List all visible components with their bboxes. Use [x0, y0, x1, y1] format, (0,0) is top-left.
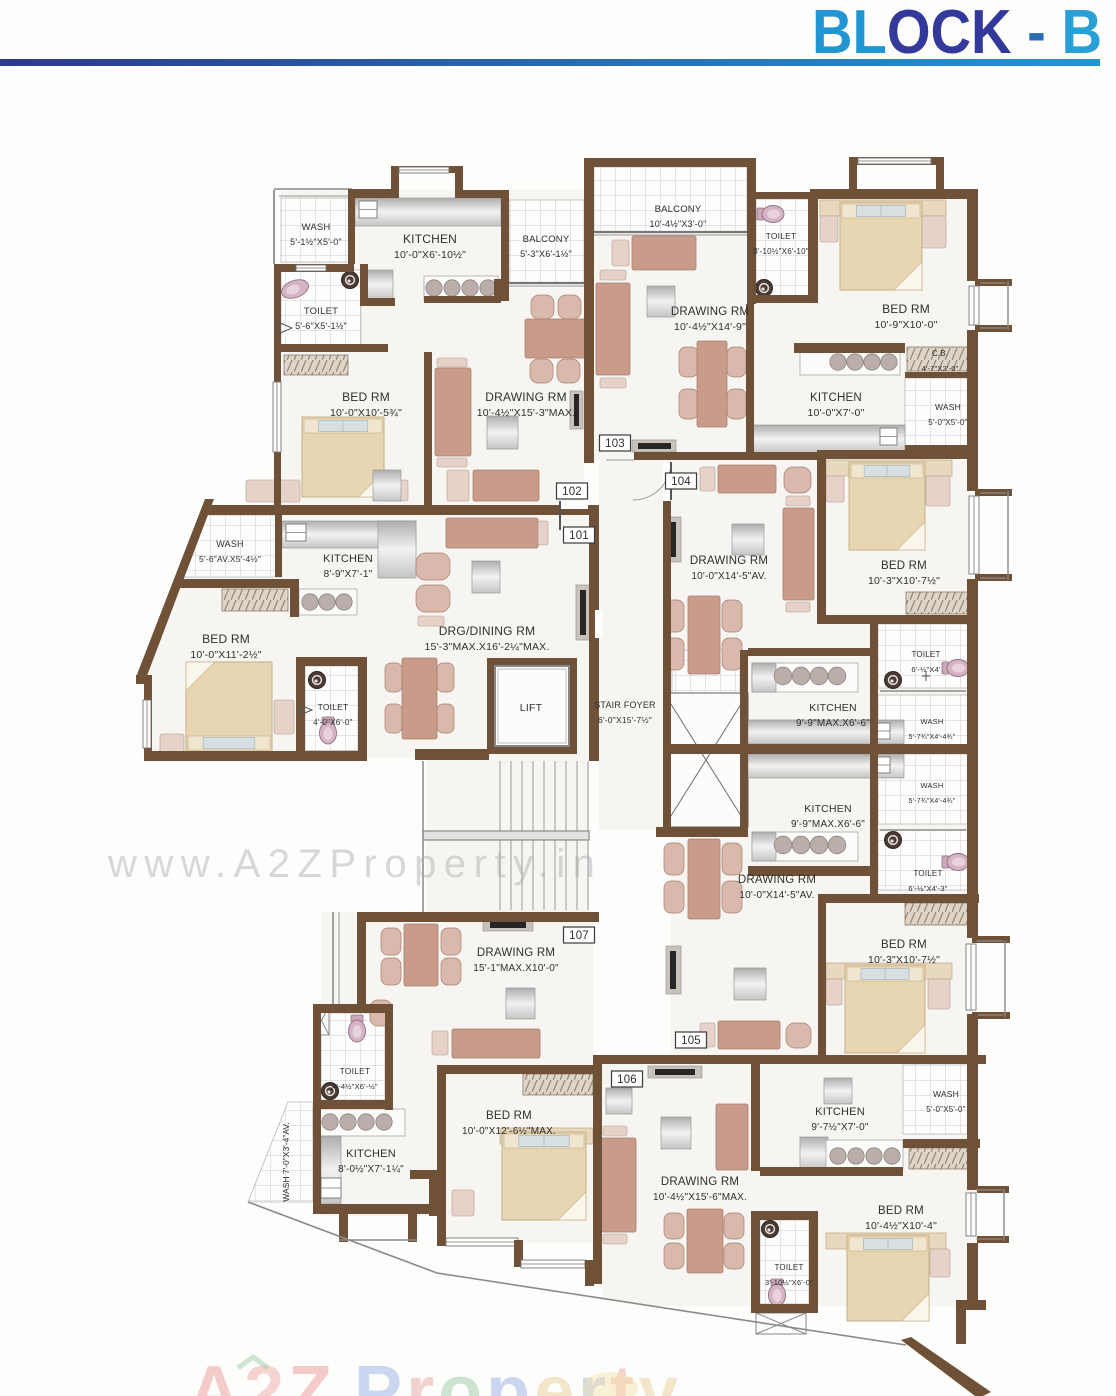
svg-text:10'-4½"X3'-0": 10'-4½"X3'-0": [650, 219, 707, 229]
svg-text:DRAWING RM: DRAWING RM: [671, 306, 749, 318]
svg-text:DRAWING RM: DRAWING RM: [661, 1176, 739, 1188]
svg-text:BED RM: BED RM: [882, 302, 930, 316]
svg-text:WASH 7'-0"X3'-4"AV.: WASH 7'-0"X3'-4"AV.: [281, 1122, 291, 1201]
svg-text:WASH: WASH: [920, 717, 943, 726]
svg-text:10'-9"X10'-0": 10'-9"X10'-0": [874, 319, 937, 331]
svg-text:TOILET: TOILET: [911, 650, 940, 659]
svg-text:3'-10½"X6'-10": 3'-10½"X6'-10": [753, 247, 809, 256]
svg-text:DRAWING RM: DRAWING RM: [477, 947, 555, 959]
svg-text:KITCHEN: KITCHEN: [809, 702, 857, 714]
svg-text:5'-7¾"X4'-4¾": 5'-7¾"X4'-4¾": [909, 798, 956, 805]
svg-text:10'-0"X12'-6½"MAX.: 10'-0"X12'-6½"MAX.: [462, 1126, 556, 1137]
svg-text:10'-0"X10'-5¾": 10'-0"X10'-5¾": [330, 407, 402, 419]
svg-text:10'-0"X6'-10½": 10'-0"X6'-10½": [394, 249, 466, 261]
svg-text:KITCHEN: KITCHEN: [403, 232, 457, 246]
svg-text:BED RM: BED RM: [881, 939, 927, 951]
svg-text:15'-1"MAX.X10'-0": 15'-1"MAX.X10'-0": [473, 963, 559, 974]
svg-text:WASH: WASH: [920, 781, 943, 790]
svg-text:15'-3"MAX.X16'-2¼"MAX.: 15'-3"MAX.X16'-2¼"MAX.: [425, 641, 550, 653]
svg-text:BALCONY: BALCONY: [655, 204, 702, 215]
svg-text:KITCHEN: KITCHEN: [815, 1106, 865, 1118]
svg-text:8'-9"X7'-1": 8'-9"X7'-1": [324, 569, 373, 580]
svg-text:8'-0½"X7'-1¼": 8'-0½"X7'-1¼": [338, 1163, 404, 1175]
svg-text:www.A2ZProperty.in: www.A2ZProperty.in: [107, 842, 602, 886]
svg-text:5'-6"AV.X5'-4½": 5'-6"AV.X5'-4½": [199, 554, 261, 564]
svg-text:KITCHEN: KITCHEN: [346, 1148, 396, 1160]
svg-text:TOILET: TOILET: [913, 869, 942, 878]
svg-text:10'-3"X10'-7½": 10'-3"X10'-7½": [868, 954, 940, 966]
svg-text:10'-4½"X15'-3"MAX.: 10'-4½"X15'-3"MAX.: [477, 407, 576, 419]
svg-text:9'-9"MAX.X6'-6": 9'-9"MAX.X6'-6": [791, 819, 865, 830]
svg-text:10'-4½"X15'-6"MAX.: 10'-4½"X15'-6"MAX.: [653, 1192, 747, 1203]
svg-text:4'-7"X2'-0": 4'-7"X2'-0": [921, 364, 958, 373]
svg-text:9'-7½"X7'-0": 9'-7½"X7'-0": [811, 1122, 868, 1133]
svg-text:3'-10½"X6'-0": 3'-10½"X6'-0": [765, 1278, 813, 1287]
svg-text:101: 101: [569, 530, 589, 542]
svg-text:10'-0"X14'-5"AV.: 10'-0"X14'-5"AV.: [691, 571, 766, 582]
svg-text:BED RM: BED RM: [878, 1205, 924, 1217]
svg-text:TOILET: TOILET: [318, 702, 349, 712]
svg-text:5'-0"X5'-0": 5'-0"X5'-0": [926, 1105, 965, 1114]
svg-text:9'-9"MAX.X6'-6": 9'-9"MAX.X6'-6": [796, 718, 870, 729]
svg-text:104: 104: [671, 476, 691, 488]
svg-text:6'-½"X4': 6'-½"X4': [911, 665, 941, 674]
svg-text:WASH: WASH: [216, 539, 243, 549]
svg-text:10'-0"X7'-0": 10'-0"X7'-0": [807, 407, 864, 419]
svg-text:5'-6"X5'-1½": 5'-6"X5'-1½": [295, 321, 347, 331]
svg-text:DRAWING RM: DRAWING RM: [738, 874, 816, 886]
svg-text:5'-3"X6'-1½": 5'-3"X6'-1½": [520, 249, 572, 259]
svg-text:10'-3"X10'-7½": 10'-3"X10'-7½": [868, 575, 940, 587]
svg-text:BED RM: BED RM: [881, 560, 927, 572]
svg-text:4'-4½"X6'-½": 4'-4½"X6'-½": [332, 1082, 378, 1091]
svg-text:TOILET: TOILET: [304, 306, 338, 317]
svg-text:105: 105: [681, 1035, 701, 1047]
svg-text:C.B.: C.B.: [932, 349, 948, 358]
svg-text:106: 106: [617, 1074, 637, 1086]
svg-text:6'-0"X15'-7½": 6'-0"X15'-7½": [598, 715, 652, 725]
svg-text:LIFT: LIFT: [520, 702, 543, 714]
svg-text:WASH: WASH: [933, 1089, 959, 1099]
svg-text:BED RM: BED RM: [202, 632, 250, 646]
svg-text:6'-½"X4'-3": 6'-½"X4'-3": [908, 884, 947, 893]
svg-text:TOILET: TOILET: [766, 231, 797, 241]
svg-text:BLOCK - B: BLOCK - B: [812, 0, 1102, 67]
svg-text:WASH: WASH: [935, 402, 961, 412]
svg-text:TOILET: TOILET: [774, 1263, 803, 1272]
svg-text:BED RM: BED RM: [342, 390, 390, 404]
svg-text:5'-7¾"X4'-4¾": 5'-7¾"X4'-4¾": [909, 734, 956, 741]
svg-text:10'-4½"X14'-9": 10'-4½"X14'-9": [674, 321, 746, 333]
svg-text:10'-0"X14'-5"AV.: 10'-0"X14'-5"AV.: [739, 890, 814, 901]
svg-text:10'-0"X11'-2½": 10'-0"X11'-2½": [190, 649, 261, 661]
svg-text:WASH: WASH: [302, 222, 331, 233]
svg-text:102: 102: [562, 486, 582, 498]
svg-text:10'-4½"X10'-4": 10'-4½"X10'-4": [865, 1220, 937, 1232]
svg-text:STAIR FOYER: STAIR FOYER: [594, 700, 656, 710]
svg-text:KITCHEN: KITCHEN: [323, 553, 373, 565]
svg-text:DRAWING RM: DRAWING RM: [690, 555, 768, 567]
svg-text:KITCHEN: KITCHEN: [810, 392, 862, 404]
svg-text:BED RM: BED RM: [486, 1110, 532, 1122]
svg-text:BALCONY: BALCONY: [523, 234, 570, 245]
svg-text:107: 107: [569, 930, 589, 942]
svg-text:5'-0"X5'-0": 5'-0"X5'-0": [928, 418, 967, 427]
svg-text:5'-1½"X5'-0": 5'-1½"X5'-0": [290, 237, 342, 247]
svg-text:TOILET: TOILET: [340, 1066, 371, 1076]
svg-text:DRAWING RM: DRAWING RM: [485, 390, 567, 404]
svg-text:103: 103: [605, 438, 625, 450]
svg-text:KITCHEN: KITCHEN: [804, 803, 852, 815]
svg-text:4'-0"X6'-0": 4'-0"X6'-0": [313, 718, 352, 727]
svg-text:DRG/DINING RM: DRG/DINING RM: [439, 624, 536, 638]
